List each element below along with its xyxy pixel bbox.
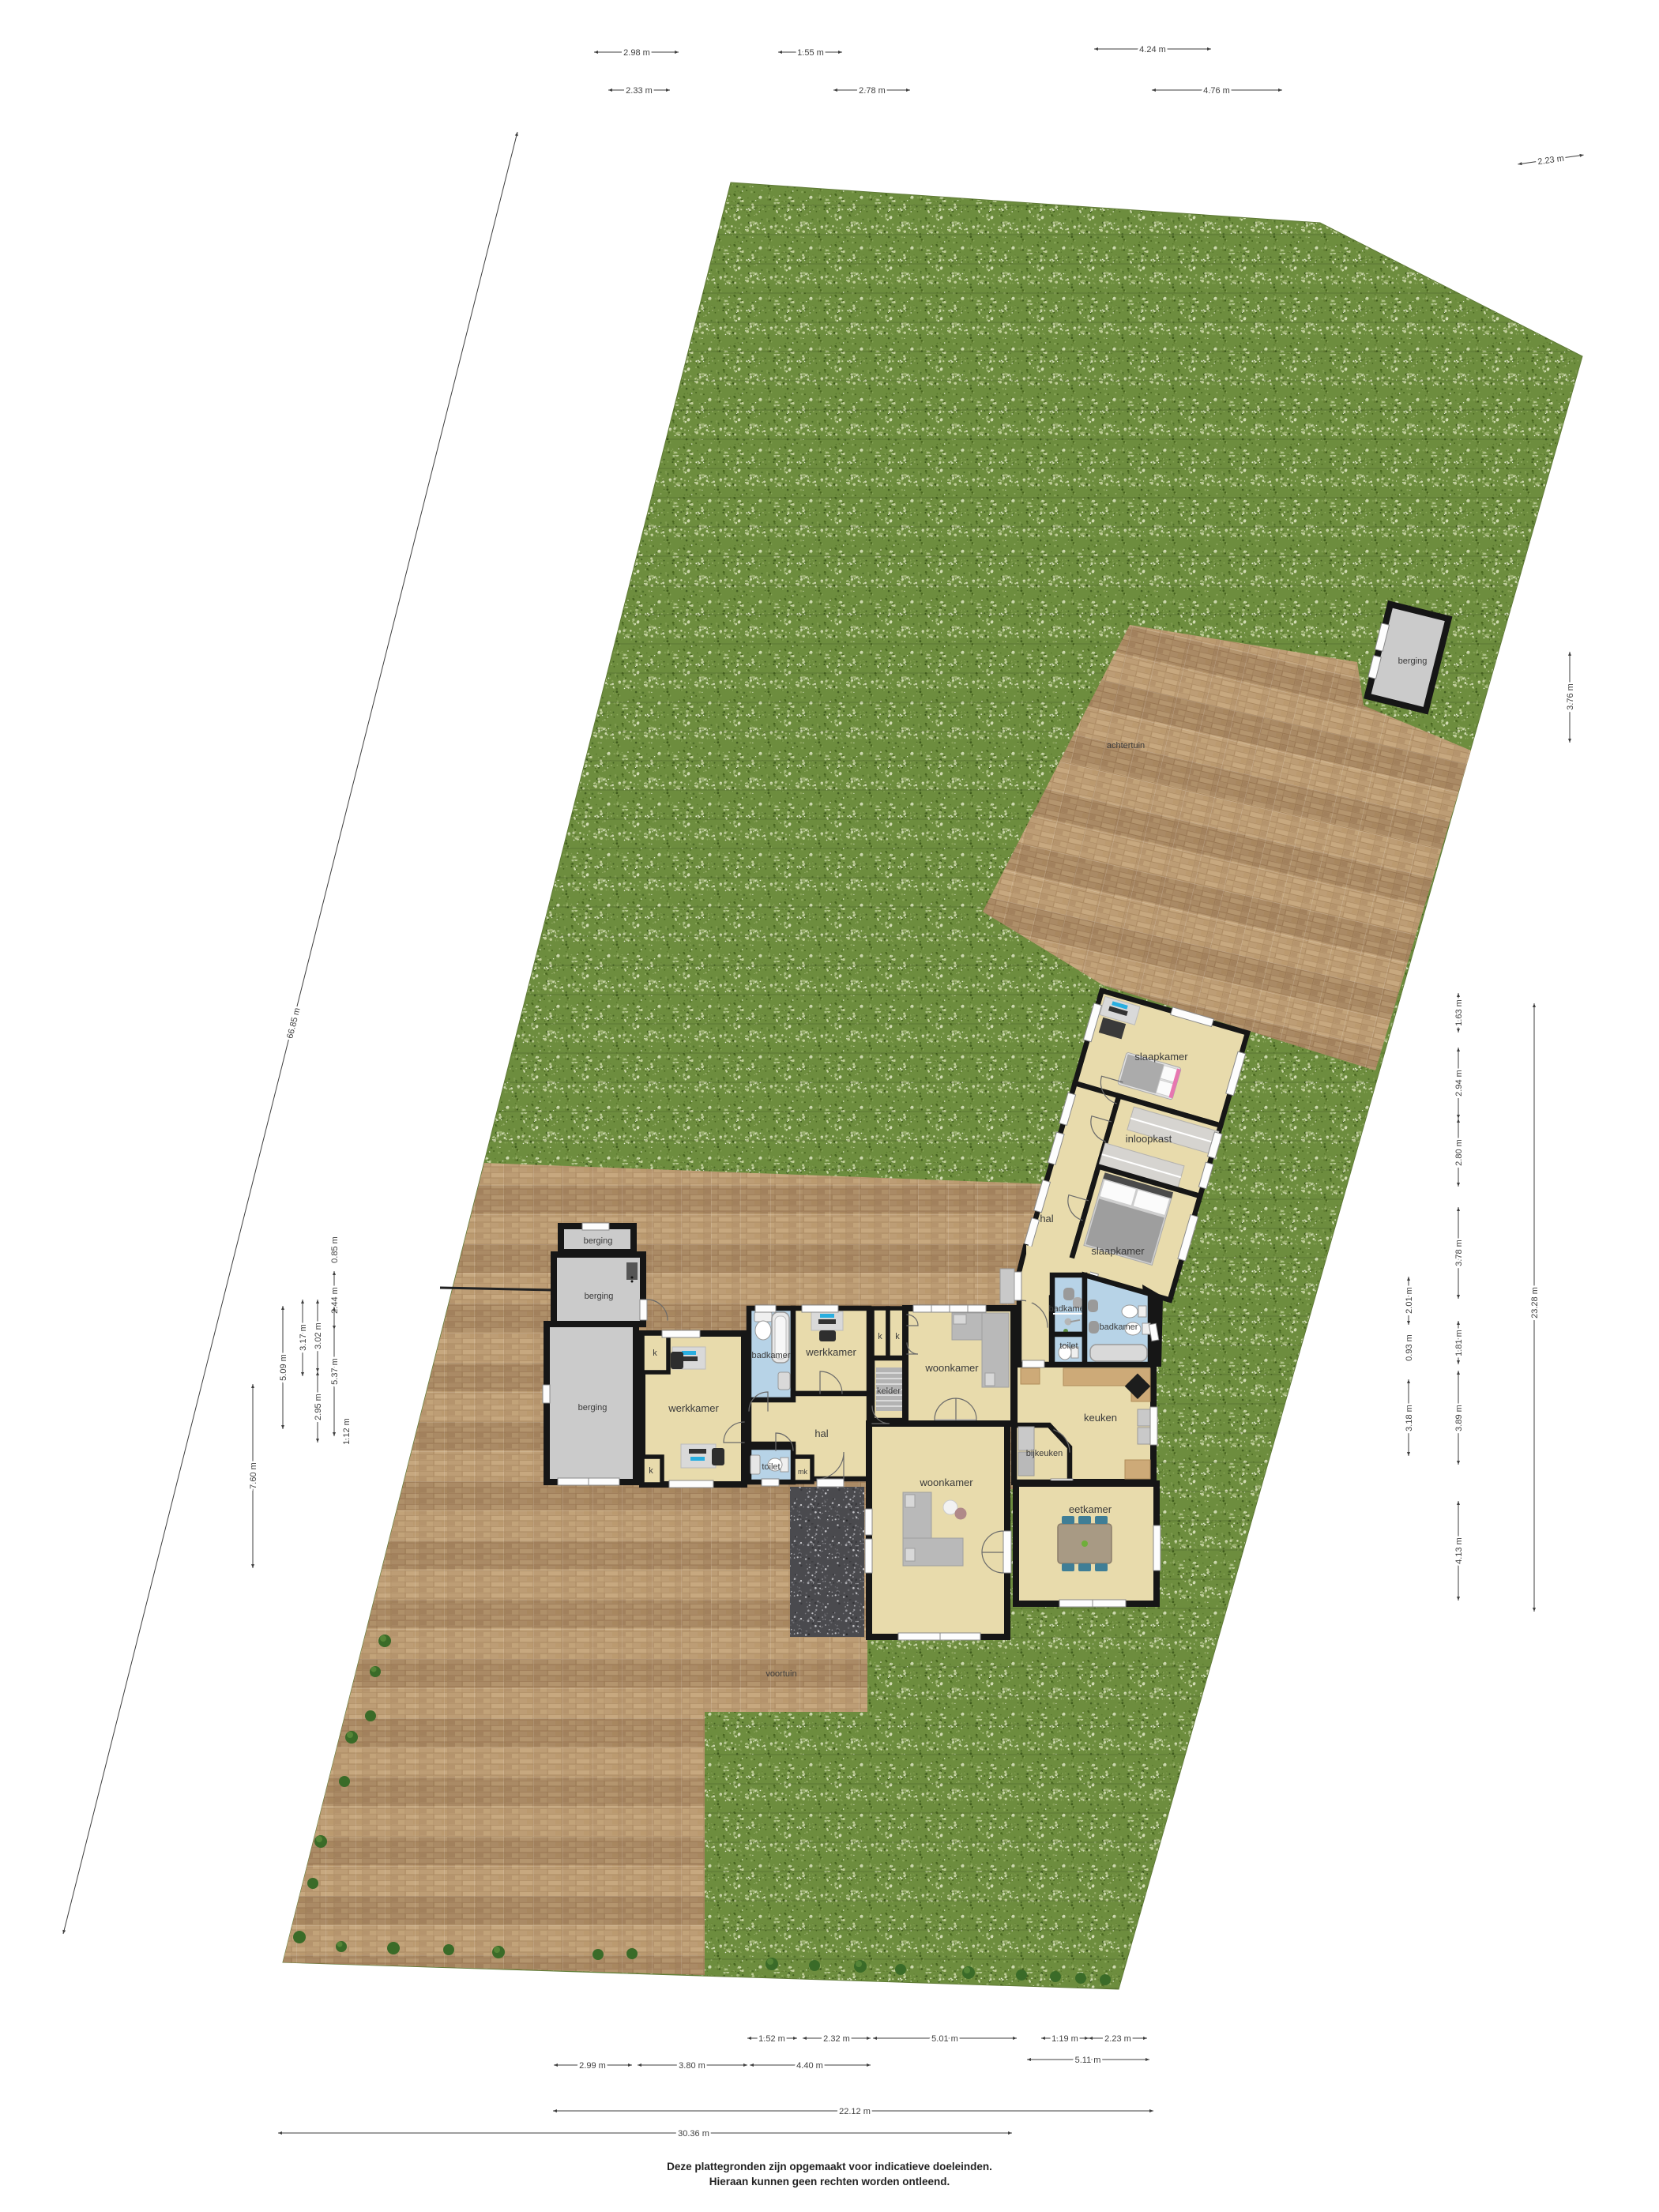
svg-text:2.99 m: 2.99 m bbox=[579, 2061, 606, 2071]
svg-text:4.76 m: 4.76 m bbox=[1203, 86, 1230, 96]
svg-text:berging: berging bbox=[1398, 656, 1428, 666]
svg-text:2.98 m: 2.98 m bbox=[623, 48, 650, 58]
svg-text:bijkeuken: bijkeuken bbox=[1026, 1449, 1063, 1458]
svg-text:berging: berging bbox=[585, 1292, 614, 1301]
svg-text:3.80 m: 3.80 m bbox=[679, 2061, 705, 2071]
svg-text:k: k bbox=[649, 1466, 653, 1476]
svg-text:5.11 m: 5.11 m bbox=[1075, 2056, 1101, 2065]
svg-text:1.55 m: 1.55 m bbox=[797, 48, 824, 58]
svg-text:3.76 m: 3.76 m bbox=[1566, 683, 1575, 710]
svg-text:1.19 m: 1.19 m bbox=[1051, 2034, 1078, 2044]
svg-text:2.94 m: 2.94 m bbox=[1454, 1070, 1464, 1097]
svg-text:woonkamer: woonkamer bbox=[924, 1362, 979, 1374]
svg-text:badkamer: badkamer bbox=[1049, 1304, 1088, 1314]
svg-text:1.63 m: 1.63 m bbox=[1454, 999, 1464, 1026]
svg-text:3.02 m: 3.02 m bbox=[314, 1322, 323, 1349]
svg-text:keuken: keuken bbox=[1084, 1412, 1117, 1424]
svg-text:5.01 m: 5.01 m bbox=[931, 2034, 958, 2044]
svg-text:berging: berging bbox=[584, 1236, 613, 1246]
svg-text:eetkamer: eetkamer bbox=[1069, 1503, 1112, 1515]
svg-text:k: k bbox=[878, 1332, 882, 1341]
svg-text:slaapkamer: slaapkamer bbox=[1091, 1245, 1145, 1257]
svg-text:4.13 m: 4.13 m bbox=[1454, 1537, 1464, 1564]
svg-text:22.12 m: 22.12 m bbox=[839, 2107, 871, 2116]
svg-text:4.40 m: 4.40 m bbox=[796, 2061, 823, 2071]
svg-text:3.17 m: 3.17 m bbox=[299, 1324, 308, 1351]
svg-text:30.36 m: 30.36 m bbox=[678, 2129, 709, 2139]
svg-text:5.37 m: 5.37 m bbox=[330, 1358, 340, 1385]
svg-text:2.01 m: 2.01 m bbox=[1405, 1287, 1414, 1314]
svg-text:1.52 m: 1.52 m bbox=[758, 2034, 785, 2044]
svg-text:slaapkamer: slaapkamer bbox=[1134, 1051, 1188, 1063]
svg-text:2.95 m: 2.95 m bbox=[314, 1394, 323, 1420]
svg-text:werkkamer: werkkamer bbox=[668, 1402, 719, 1414]
svg-text:hal: hal bbox=[814, 1428, 828, 1439]
svg-text:k: k bbox=[895, 1332, 900, 1341]
svg-text:2.78 m: 2.78 m bbox=[859, 86, 886, 96]
svg-text:2.23 m: 2.23 m bbox=[1104, 2034, 1131, 2044]
svg-text:toilet: toilet bbox=[762, 1462, 780, 1472]
svg-text:badkamer: badkamer bbox=[1100, 1322, 1138, 1332]
svg-text:achtertuin: achtertuin bbox=[1107, 741, 1145, 750]
svg-text:werkkamer: werkkamer bbox=[805, 1346, 856, 1358]
svg-text:berging: berging bbox=[578, 1403, 608, 1413]
svg-text:0.93 m: 0.93 m bbox=[1405, 1334, 1414, 1361]
svg-text:Deze plattegronden zijn opgema: Deze plattegronden zijn opgemaakt voor i… bbox=[667, 2161, 992, 2172]
svg-text:Hieraan kunnen geen rechten wo: Hieraan kunnen geen rechten worden ontle… bbox=[709, 2176, 950, 2188]
svg-text:k: k bbox=[653, 1349, 657, 1358]
svg-text:badkamer: badkamer bbox=[752, 1351, 791, 1360]
svg-text:voortuin: voortuin bbox=[766, 1669, 796, 1679]
svg-text:2.33 m: 2.33 m bbox=[626, 86, 653, 96]
svg-text:3.78 m: 3.78 m bbox=[1454, 1240, 1464, 1266]
svg-text:2.44 m: 2.44 m bbox=[330, 1287, 340, 1314]
svg-text:3.18 m: 3.18 m bbox=[1405, 1405, 1414, 1431]
svg-text:1.12 m: 1.12 m bbox=[342, 1418, 352, 1445]
svg-text:2.80 m: 2.80 m bbox=[1454, 1139, 1464, 1166]
svg-text:2.32 m: 2.32 m bbox=[823, 2034, 850, 2044]
svg-text:4.24 m: 4.24 m bbox=[1139, 45, 1166, 55]
svg-text:inloopkast: inloopkast bbox=[1126, 1133, 1172, 1145]
svg-text:0.85 m: 0.85 m bbox=[330, 1236, 340, 1263]
svg-text:3.89 m: 3.89 m bbox=[1454, 1405, 1464, 1431]
svg-text:1.81 m: 1.81 m bbox=[1454, 1330, 1464, 1356]
svg-text:5.09 m: 5.09 m bbox=[279, 1354, 288, 1381]
svg-text:23.28 m: 23.28 m bbox=[1530, 1287, 1540, 1319]
svg-text:toilet: toilet bbox=[1059, 1341, 1078, 1351]
svg-text:kelder: kelder bbox=[877, 1386, 901, 1396]
svg-text:mk: mk bbox=[798, 1468, 807, 1476]
svg-text:7.60 m: 7.60 m bbox=[249, 1462, 258, 1489]
svg-text:hal: hal bbox=[1040, 1213, 1053, 1224]
svg-text:woonkamer: woonkamer bbox=[919, 1477, 973, 1488]
